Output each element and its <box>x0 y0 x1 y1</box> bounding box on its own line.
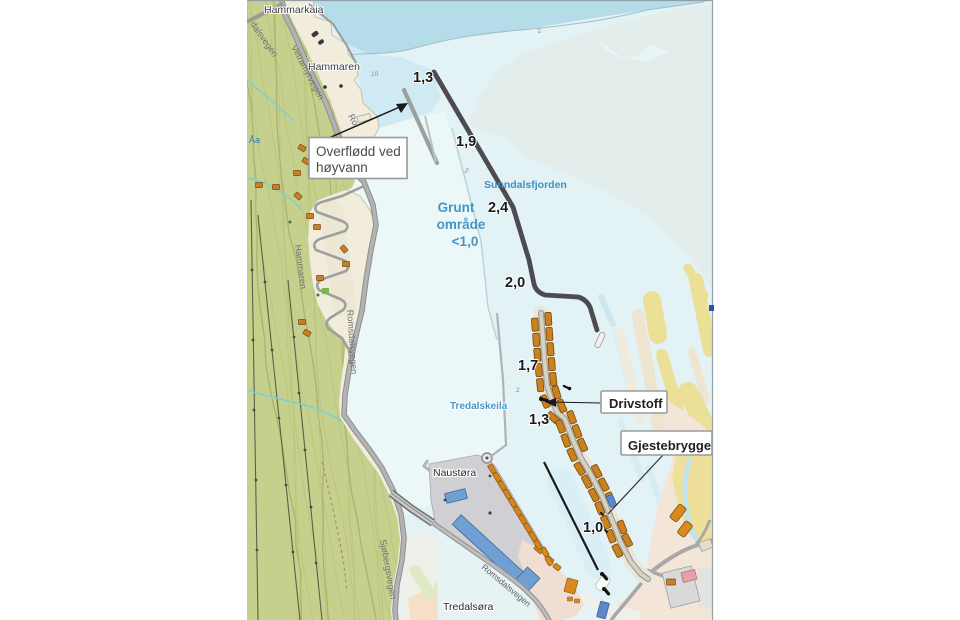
svg-text:<1,0: <1,0 <box>452 234 479 249</box>
svg-text:område: område <box>437 217 486 232</box>
svg-text:2,4: 2,4 <box>488 200 508 216</box>
svg-text:Sunndalsfjorden: Sunndalsfjorden <box>484 179 567 191</box>
svg-text:1,9: 1,9 <box>456 134 476 150</box>
svg-text:1,7: 1,7 <box>518 358 538 374</box>
svg-text:Tredalskeila: Tredalskeila <box>450 401 508 412</box>
svg-text:Åa: Åa <box>249 135 260 145</box>
svg-text:Naustøra: Naustøra <box>433 467 476 479</box>
svg-text:Gjestebrygge: Gjestebrygge <box>628 438 711 453</box>
svg-text:1,0: 1,0 <box>583 520 603 536</box>
svg-text:Grunt: Grunt <box>438 200 475 215</box>
svg-text:10: 10 <box>371 71 379 78</box>
svg-text:Tredalsøra: Tredalsøra <box>443 601 494 613</box>
svg-text:1,3: 1,3 <box>413 70 433 86</box>
svg-text:2,0: 2,0 <box>505 275 525 291</box>
svg-text:høyvann: høyvann <box>316 160 368 175</box>
svg-text:2: 2 <box>516 387 520 394</box>
svg-text:Hammarkaia: Hammarkaia <box>264 4 324 16</box>
svg-text:1,3: 1,3 <box>529 412 549 428</box>
svg-text:Hammaren: Hammaren <box>308 61 360 73</box>
svg-text:Drivstoff: Drivstoff <box>609 396 663 411</box>
svg-text:Overflødd ved: Overflødd ved <box>316 144 401 159</box>
